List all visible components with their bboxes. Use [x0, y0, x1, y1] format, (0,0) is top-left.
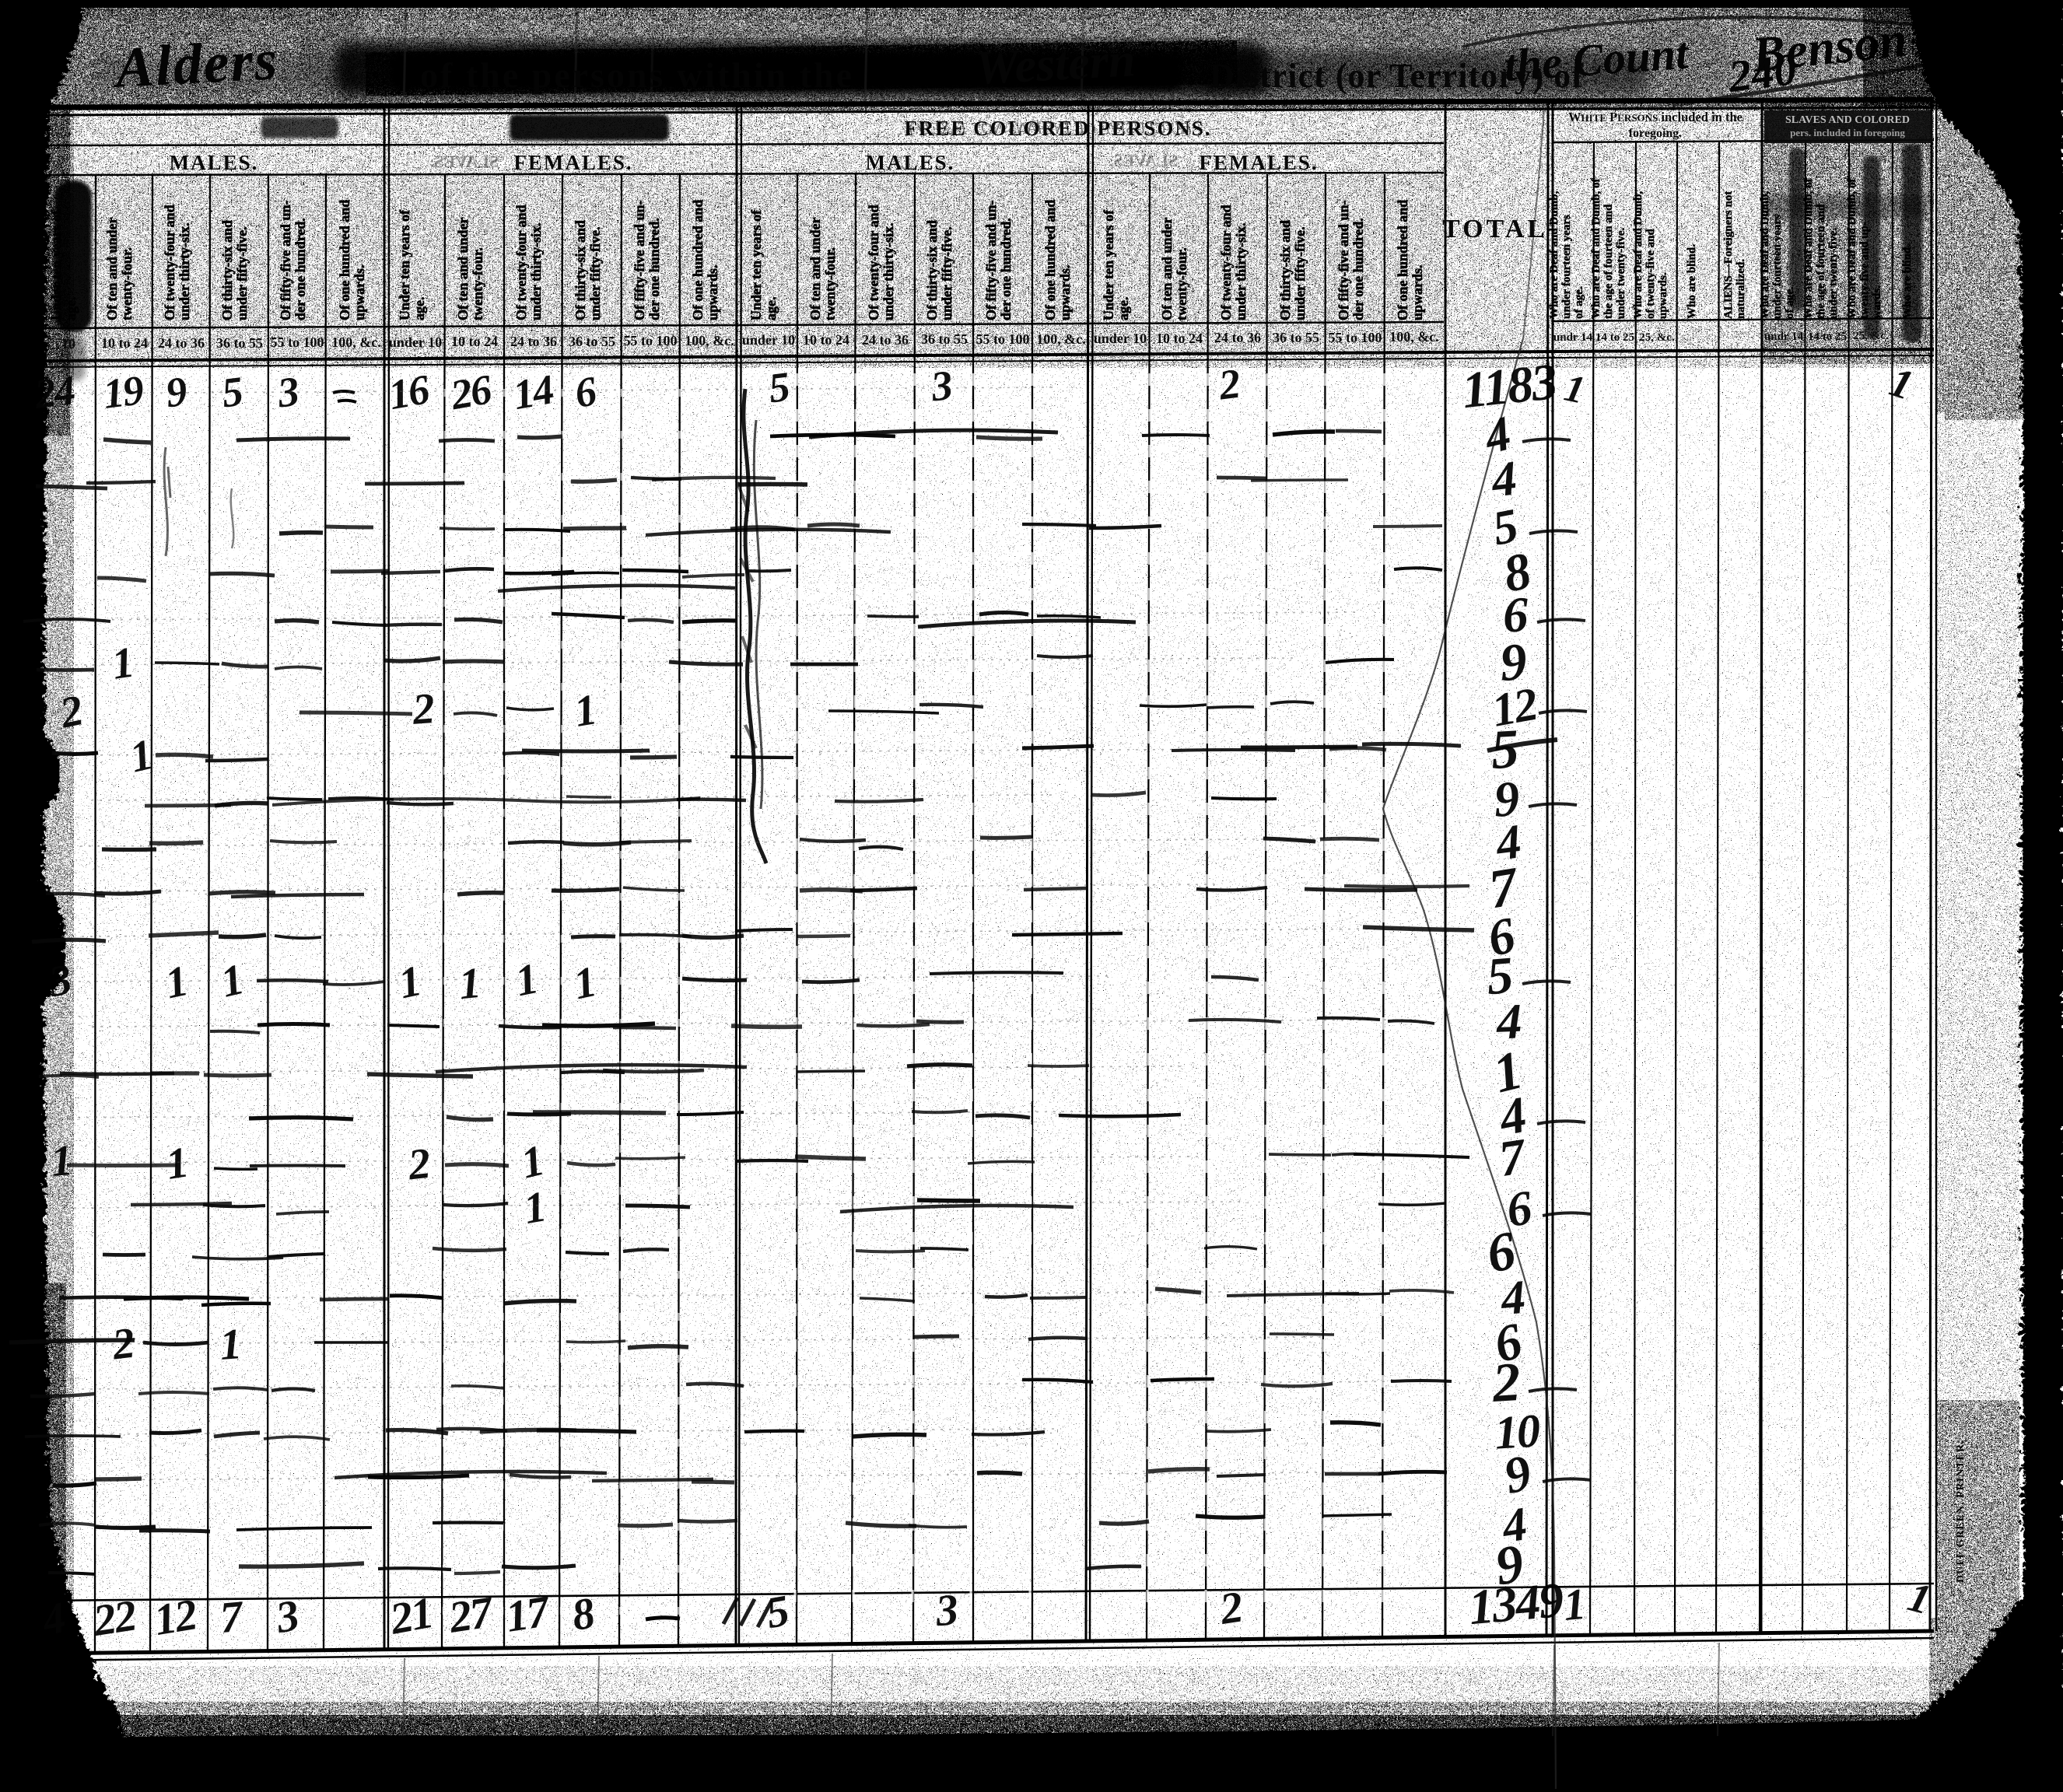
svg-text:100, &c.: 100, &c.	[331, 334, 380, 350]
svg-text:Who are blind.: Who are blind.	[1901, 244, 1914, 319]
svg-text:10 to 24: 10 to 24	[451, 334, 498, 349]
svg-text:of age.: of age.	[1784, 286, 1796, 319]
svg-text:1: 1	[1561, 1580, 1586, 1630]
svg-text:under 10: under 10	[389, 334, 442, 350]
svg-text:Under ten years of: Under ten years of	[748, 209, 764, 320]
svg-text:10: 10	[61, 336, 75, 352]
svg-text:2: 2	[411, 684, 436, 734]
svg-text:under twenty-five.: under twenty-five.	[1615, 228, 1627, 319]
svg-text:under 10: under 10	[742, 332, 795, 348]
svg-text:FREE COLORED PERSONS.: FREE COLORED PERSONS.	[904, 117, 1211, 140]
svg-text:of twenty-five and: of twenty-five and	[1644, 229, 1657, 319]
svg-text:Of thirty-six and: Of thirty-six and	[1277, 220, 1293, 320]
svg-text:1183: 1183	[1459, 353, 1559, 419]
svg-text:twenty-four.: twenty-four.	[119, 247, 135, 320]
svg-text:MALES.: MALES.	[170, 151, 259, 174]
svg-text:the age of fourteen and: the age of fourteen and	[1815, 204, 1827, 319]
svg-text:36 to 55: 36 to 55	[1273, 330, 1319, 345]
svg-text:1: 1	[218, 1320, 241, 1370]
svg-text:Under ten years of: Under ten years of	[1101, 209, 1116, 320]
svg-text:24 to 36: 24 to 36	[510, 334, 557, 349]
svg-text:24 to 36: 24 to 36	[862, 332, 909, 348]
svg-text:14 to 25: 14 to 25	[1595, 331, 1634, 344]
svg-text:under fifty-five.: under fifty-five.	[939, 226, 954, 320]
svg-text:Western: Western	[974, 33, 1137, 95]
svg-text:Who are Deaf and Dumb,: Who are Deaf and Dumb,	[1632, 191, 1644, 319]
svg-text:2: 2	[1490, 1352, 1522, 1414]
svg-text:age.: age.	[412, 297, 427, 321]
svg-text:under fourteen years: under fourteen years	[1771, 215, 1784, 319]
svg-text:Alders: Alders	[111, 28, 280, 100]
svg-text:Of fifty-five and un-: Of fifty-five and un-	[983, 201, 999, 321]
svg-text:the age of fourteen and: the age of fourteen and	[1602, 204, 1615, 319]
svg-text:foregoing.: foregoing.	[1629, 127, 1683, 140]
svg-text:under thirty-six.: under thirty-six.	[177, 222, 192, 320]
svg-text:under thirty-six.: under thirty-six.	[881, 222, 896, 320]
svg-text:14 to 25: 14 to 25	[1808, 331, 1847, 343]
svg-text:Of ten and under: Of ten and under	[1159, 217, 1175, 320]
svg-text:wards.: wards.	[1871, 285, 1883, 319]
svg-text:upwards.: upwards.	[1657, 272, 1669, 319]
svg-text:undr 14: undr 14	[1553, 331, 1593, 344]
svg-text:55 to 100: 55 to 100	[624, 333, 678, 348]
svg-text:Who are Deaf and Dumb,: Who are Deaf and Dumb,	[1759, 191, 1771, 319]
svg-text:55 to 100: 55 to 100	[271, 334, 324, 350]
svg-text:ALIENS—Foreigners not: ALIENS—Foreigners not	[1722, 191, 1735, 319]
svg-text:55 to 100: 55 to 100	[1329, 330, 1382, 345]
svg-text:1349: 1349	[1466, 1572, 1565, 1635]
svg-text:der one hundred.: der one hundred.	[1350, 218, 1366, 320]
svg-text:24: 24	[31, 366, 77, 418]
svg-text:Of one hundred and: Of one hundred and	[1042, 200, 1058, 320]
svg-text:Of ten and under: Of ten and under	[455, 217, 471, 320]
svg-text:10 to 24: 10 to 24	[1156, 331, 1203, 346]
svg-text:DUFF GREEN, PRINTER.: DUFF GREEN, PRINTER.	[1955, 1440, 1967, 1583]
svg-text:upwards.: upwards.	[1410, 264, 1425, 320]
svg-text:under 10: under 10	[1094, 331, 1147, 346]
svg-text:Of thirty-six and: Of thirty-six and	[924, 220, 940, 320]
svg-text:36 to 55: 36 to 55	[569, 334, 615, 349]
svg-text:under twenty-five.: under twenty-five.	[1827, 228, 1840, 319]
svg-text:Of twenty-four and: Of twenty-four and	[866, 205, 881, 320]
svg-text:3: 3	[933, 1585, 959, 1636]
svg-text:under thirty-six.: under thirty-six.	[528, 222, 544, 320]
svg-text:Who are Deaf and Dumb, of: Who are Deaf and Dumb, of	[1802, 177, 1815, 319]
svg-text:Under ten years of: Under ten years of	[397, 209, 412, 320]
svg-text:upwards.: upwards.	[1057, 264, 1073, 320]
svg-text:10 to 24: 10 to 24	[803, 332, 849, 348]
svg-text:under fifty-five.: under fifty-five.	[587, 226, 603, 320]
svg-text:age.: age.	[1116, 297, 1131, 321]
svg-text:Of fifty-five and un-: Of fifty-five and un-	[278, 201, 293, 321]
svg-text:36 to 55: 36 to 55	[216, 335, 263, 351]
svg-text:21: 21	[386, 1588, 436, 1644]
svg-text:22: 22	[89, 1591, 139, 1646]
svg-text:Of twenty-four and: Of twenty-four and	[1218, 205, 1234, 320]
svg-text:undr 14: undr 14	[1764, 331, 1804, 343]
svg-text:der one hundred.: der one hundred.	[292, 218, 308, 320]
svg-text:100, &c.: 100, &c.	[685, 333, 734, 348]
svg-text:under fifty-five.: under fifty-five.	[1292, 226, 1308, 320]
svg-text:pers. included in foregoing: pers. included in foregoing	[1790, 127, 1905, 138]
svg-text:100, &c.: 100, &c.	[1036, 331, 1085, 347]
svg-text:MALES.: MALES.	[866, 151, 955, 174]
svg-text:Of ten and under: Of ten and under	[807, 217, 823, 320]
svg-text:Of twenty-four and: Of twenty-four and	[513, 205, 529, 320]
svg-text:twenty-four.: twenty-four.	[470, 247, 485, 320]
svg-text:Of fifty-five and un-: Of fifty-five and un-	[1336, 201, 1351, 321]
svg-text:age.: age.	[763, 297, 779, 321]
svg-text:10 to 24: 10 to 24	[101, 335, 148, 351]
svg-text:der one hundred.: der one hundred.	[998, 218, 1014, 320]
svg-text:Who are Deaf and Dumb, of: Who are Deaf and Dumb, of	[1846, 177, 1858, 319]
svg-text:under thirty-six.: under thirty-six.	[1233, 222, 1249, 320]
svg-text:Who are Deaf and Dumb,: Who are Deaf and Dumb,	[1548, 191, 1560, 319]
svg-text:24 to 36: 24 to 36	[1214, 330, 1261, 345]
svg-text:Who are blind.: Who are blind.	[1686, 244, 1698, 319]
svg-text:twenty-five and up-: twenty-five and up-	[1858, 222, 1871, 319]
svg-text:naturalized.: naturalized.	[1735, 259, 1747, 319]
svg-text:SLAVES.: SLAVES.	[430, 152, 499, 171]
svg-text:24 to 36: 24 to 36	[158, 335, 205, 351]
svg-text:25, &c.: 25, &c.	[1853, 330, 1889, 342]
svg-text:upwards.: upwards.	[705, 264, 720, 320]
svg-text:twenty-four.: twenty-four.	[822, 247, 838, 320]
svg-text:Of one hundred and: Of one hundred and	[337, 200, 352, 320]
svg-text:Of one hundred and: Of one hundred and	[690, 200, 706, 320]
svg-text:Of ten and under: Of ten and under	[104, 217, 120, 320]
svg-text:SLAVES AND COLORED: SLAVES AND COLORED	[1785, 114, 1910, 126]
svg-text:der one hundred.: der one hundred.	[646, 218, 662, 320]
svg-text:FEMALES.: FEMALES.	[513, 151, 632, 174]
svg-text:of the persons within the: of the persons within the	[420, 55, 854, 95]
svg-text:100, &c.: 100, &c.	[1389, 329, 1438, 345]
svg-text:Of thirty-six and: Of thirty-six and	[219, 220, 235, 320]
svg-text:Under ten years of: Under ten years of	[48, 209, 64, 320]
svg-text:36 to 55: 36 to 55	[921, 331, 968, 347]
svg-text:WHITE PERSONS included in the: WHITE PERSONS included in the	[1568, 110, 1743, 124]
svg-text:age.: age.	[63, 297, 79, 321]
svg-text:55 to 100: 55 to 100	[976, 331, 1030, 347]
svg-text:Of twenty-four and: Of twenty-four and	[162, 205, 177, 320]
svg-text:SLAVES.: SLAVES.	[1109, 151, 1178, 170]
svg-text:TOTAL: TOTAL	[1442, 215, 1548, 243]
svg-text:Of fifty-five and un-: Of fifty-five and un-	[632, 201, 647, 321]
svg-text:of age.: of age.	[1573, 286, 1585, 319]
svg-text:Of one hundred and: Of one hundred and	[1395, 200, 1410, 320]
svg-text:twenty-four.: twenty-four.	[1174, 247, 1189, 320]
svg-text:upwards.: upwards.	[352, 264, 367, 320]
svg-text:19: 19	[100, 366, 146, 418]
svg-text:Of thirty-six and: Of thirty-six and	[573, 220, 588, 320]
svg-text:Who are Deaf and Dumb, of: Who are Deaf and Dumb, of	[1590, 177, 1602, 319]
svg-text:under fifty-five.: under fifty-five.	[234, 226, 250, 320]
svg-text:FEMALES.: FEMALES.	[1199, 151, 1318, 174]
svg-text:1: 1	[49, 1136, 73, 1186]
svg-text:under fourteen years: under fourteen years	[1560, 215, 1573, 319]
svg-text:25, &c.: 25, &c.	[1639, 331, 1675, 344]
